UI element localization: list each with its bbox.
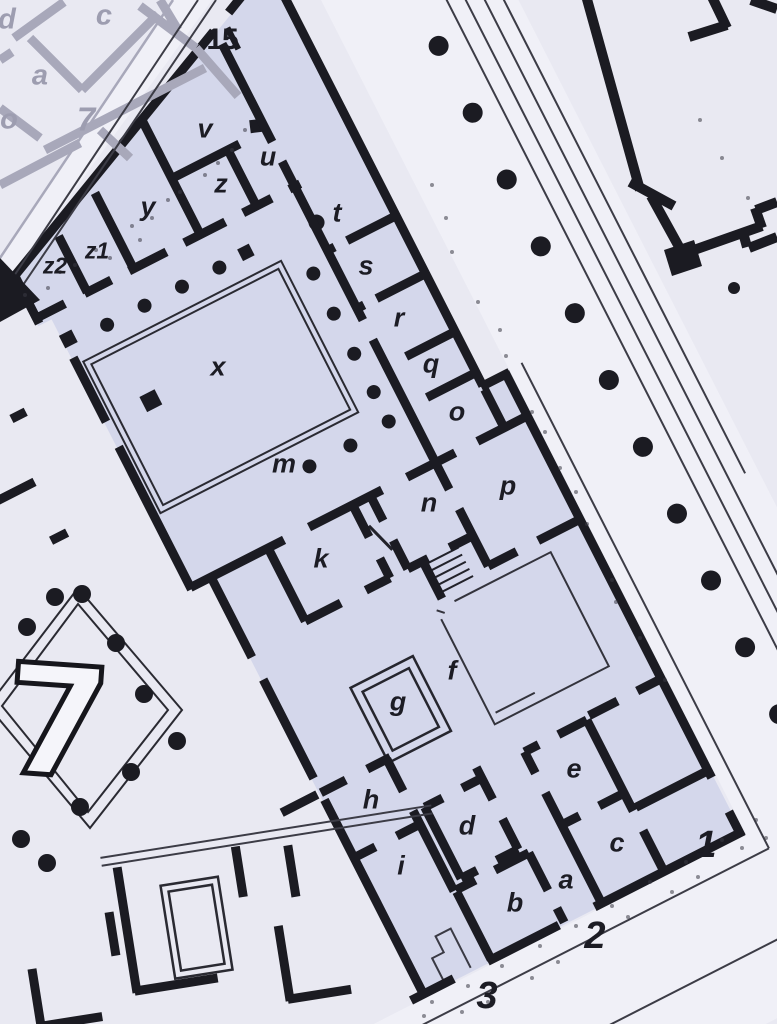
room-label-y: y [140,194,155,221]
room-label-p: p [500,473,517,500]
neighbor-label-7: 7 [77,103,95,136]
insula-number-big: 7 [0,631,116,815]
neighbor-label-d: d [0,6,16,35]
room-label-n: n [421,490,438,517]
entrance-number-2: 2 [584,917,605,955]
neighbor-walls [16,832,351,1024]
room-label-g: g [390,689,407,716]
room-label-a: a [558,867,573,894]
room-label-e: e [566,756,581,783]
opposite-insula-column [728,282,740,294]
room-label-c: c [609,830,624,857]
site-plan-page: 7 v u z y z1 z2 t s r q o x m n p k g f … [0,0,777,1024]
neighbor-basin-border [161,877,233,979]
room-label-m: m [272,451,296,478]
neighbor-label-o: o [0,106,18,135]
entrance-number-3: 3 [476,977,497,1015]
neighbor-label-c: c [96,2,112,31]
room-label-t: t [333,200,342,227]
room-label-o: o [449,399,466,426]
entrance-number-1: 1 [695,826,716,864]
room-label-f: f [448,658,457,685]
neighbor-label-a: a [32,62,48,91]
room-label-z1: z1 [85,240,109,263]
room-label-h: h [363,787,380,814]
room-label-r: r [394,305,405,332]
room-label-k: k [313,546,328,573]
room-label-x: x [210,354,225,381]
room-label-q: q [423,351,440,378]
plan-drawing: 7 [0,0,777,1024]
room-label-i: i [397,853,405,880]
room-label-b: b [507,890,524,917]
room-label-u: u [260,144,277,171]
room-label-d: d [459,813,476,840]
room-label-s: s [358,253,373,280]
entrance-number-15: 15 [206,25,237,55]
room-label-z: z [214,171,228,198]
room-label-v: v [197,116,212,143]
room-label-z2: z2 [43,255,67,278]
insula-seven-garden: 7 [0,585,186,872]
